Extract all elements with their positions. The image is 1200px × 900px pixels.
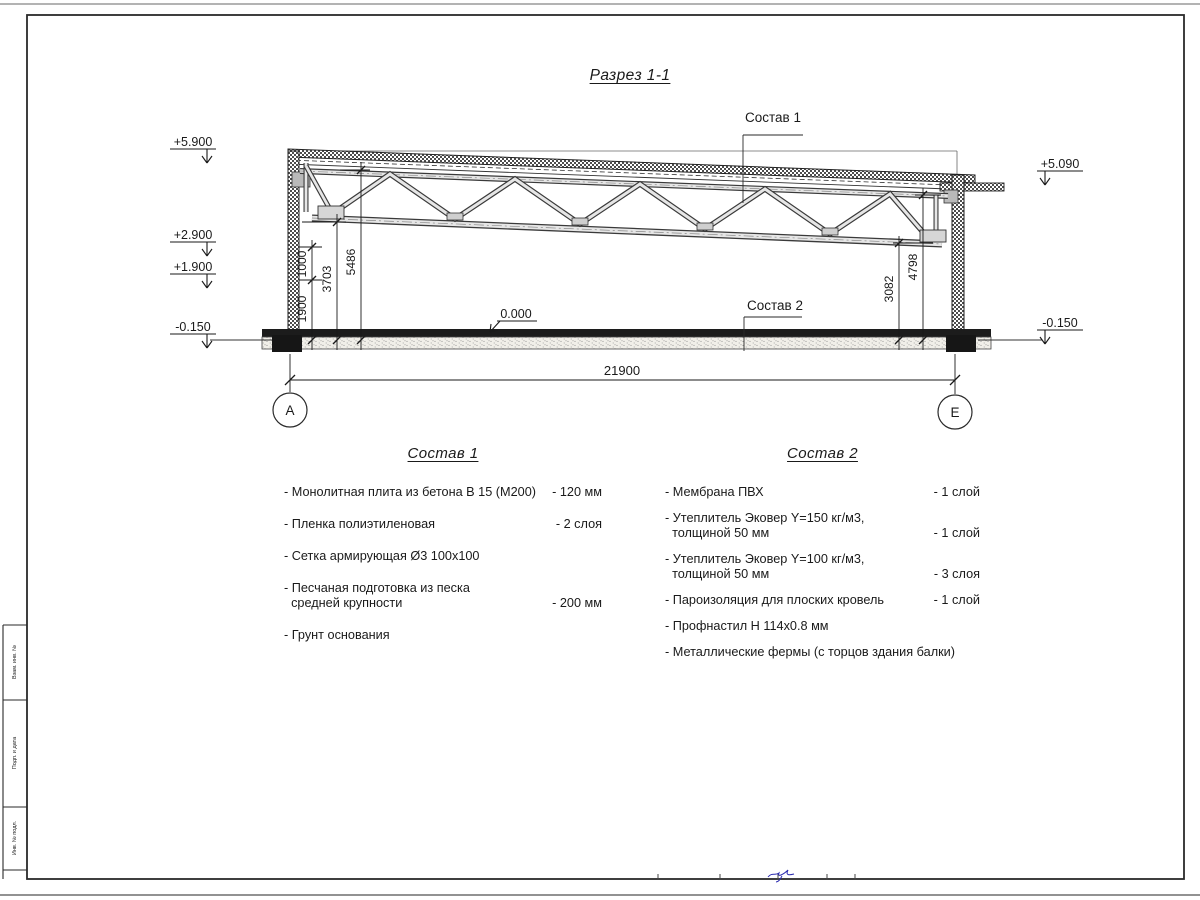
material-name: - Утеплитель Эковер Y=100 кг/м3, толщино… (665, 552, 864, 582)
material-qty: - 3 слоя (924, 567, 980, 582)
svg-text:+1.900: +1.900 (174, 260, 213, 274)
material-name: - Грунт основания (284, 628, 390, 643)
material-qty: - 1 слой (924, 593, 980, 608)
dim-1900: 1900 (295, 295, 309, 322)
material-qty: - 1 слой (924, 485, 980, 500)
footing-left (272, 335, 302, 352)
svg-text:-0.150: -0.150 (1042, 316, 1077, 330)
material-name: - Монолитная плита из бетона В 15 (М200) (284, 485, 536, 500)
blue-signature (768, 870, 794, 882)
floor-bedding (262, 337, 991, 349)
svg-text:-0.150: -0.150 (175, 320, 210, 334)
dim-span: 21900 (604, 363, 640, 378)
material-qty: - 200 мм (542, 596, 602, 611)
drawing-title: Разрез 1-1 (555, 67, 705, 85)
svg-text:+2.900: +2.900 (174, 228, 213, 242)
legend-2-row: - Мембрана ПВХ - 1 слой (665, 485, 980, 500)
elevation-base-left: -0.150 (170, 320, 216, 348)
elevation-base-right: -0.150 (1037, 316, 1083, 344)
legend-sostav-1: Состав 1 - Монолитная плита из бетона В … (284, 445, 602, 660)
floor-slab (262, 329, 991, 337)
callout-sostav-2: Состав 2 (747, 298, 803, 313)
frame-label-2: Подп. и дата (12, 736, 18, 769)
material-qty: - 2 слоя (546, 517, 602, 532)
dim-3082: 3082 (882, 275, 896, 302)
material-name: - Профнастил Н 114х0.8 мм (665, 619, 829, 634)
legend-1-row: - Грунт основания (284, 628, 602, 643)
legend-1-heading: Состав 1 (284, 445, 602, 462)
material-name: - Мембрана ПВХ (665, 485, 764, 500)
legend-2-heading: Состав 2 (665, 445, 980, 462)
legend-sostav-2: Состав 2 - Мембрана ПВХ - 1 слой - Утепл… (665, 445, 980, 671)
legend-2-row: - Пароизоляция для плоских кровель - 1 с… (665, 593, 980, 608)
frame-label-1: Взам. инв. № (12, 645, 18, 679)
material-name: - Пленка полиэтиленовая (284, 517, 435, 532)
legend-1-row: - Монолитная плита из бетона В 15 (М200)… (284, 485, 602, 500)
legend-1-row: - Пленка полиэтиленовая - 2 слоя (284, 517, 602, 532)
dim-1000: 1000 (295, 250, 309, 277)
footing-right (946, 335, 976, 352)
legend-2-row: - Утеплитель Эковер Y=150 кг/м3, толщино… (665, 511, 980, 541)
elevation-2900: +2.900 (170, 228, 216, 256)
material-name: - Утеплитель Эковер Y=150 кг/м3, толщино… (665, 511, 864, 541)
svg-text:+5.090: +5.090 (1041, 157, 1080, 171)
callout-sostav-1: Состав 1 (745, 110, 801, 125)
grid-axis-right: Е (938, 395, 972, 429)
grid-axis-left: А (273, 393, 307, 427)
axis-letter-left: А (285, 403, 294, 418)
legend-1-row: - Песчаная подготовка из песка средней к… (284, 581, 602, 611)
svg-text:0.000: 0.000 (500, 307, 531, 321)
dim-4798: 4798 (906, 253, 920, 280)
material-qty: - 120 мм (542, 485, 602, 500)
material-name: - Металлические фермы (с торцов здания б… (665, 645, 955, 660)
legend-2-row: - Металлические фермы (с торцов здания б… (665, 645, 980, 660)
elevation-roof-right: +5.090 (1037, 157, 1083, 185)
drawing-sheet: Взам. инв. № Подп. и дата Инв. № подл. (0, 0, 1200, 900)
elevation-roof-left: +5.900 (170, 135, 216, 163)
frame-label-3: Инв. № подл. (12, 820, 18, 855)
legend-1-row: - Сетка армирующая Ø3 100х100 (284, 549, 602, 564)
material-name: - Пароизоляция для плоских кровель (665, 593, 884, 608)
material-qty: - 1 слой (924, 526, 980, 541)
svg-text:+5.900: +5.900 (174, 135, 213, 149)
frame-left-labels: Взам. инв. № Подп. и дата Инв. № подл. (12, 645, 18, 855)
dim-5486: 5486 (344, 248, 358, 275)
material-name: - Песчаная подготовка из песка средней к… (284, 581, 470, 611)
dim-3703: 3703 (320, 265, 334, 292)
span-dimension: 21900 (285, 354, 960, 394)
elevation-floor: 0.000 (490, 307, 537, 332)
elevation-1900: +1.900 (170, 260, 216, 288)
legend-2-row: - Утеплитель Эковер Y=100 кг/м3, толщино… (665, 552, 980, 582)
material-name: - Сетка армирующая Ø3 100х100 (284, 549, 480, 564)
legend-2-row: - Профнастил Н 114х0.8 мм (665, 619, 980, 634)
axis-letter-right: Е (950, 405, 959, 420)
